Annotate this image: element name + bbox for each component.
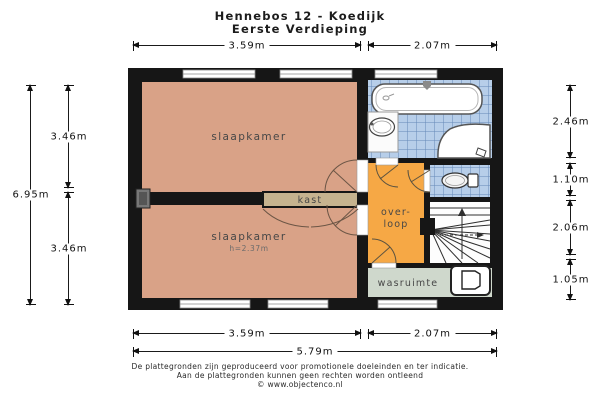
- dim-bottom-left: 3.59m: [133, 333, 361, 334]
- bathtub-icon: [372, 81, 482, 114]
- dim-left-lower-label: 3.46m: [46, 243, 91, 254]
- footer-line-1: De plattegronden zijn geproduceerd voor …: [0, 362, 600, 371]
- dim-right-4: 1.05m: [570, 259, 571, 300]
- footer-disclaimer: De plattegronden zijn geproduceerd voor …: [0, 362, 600, 389]
- footer-line-3: © www.objectenco.nl: [0, 380, 600, 389]
- dim-right-1-label: 2.46m: [548, 116, 593, 127]
- page-title: Hennebos 12 - Koedijk Eerste Verdieping: [0, 10, 600, 36]
- label-landing-2: loop: [383, 219, 408, 230]
- label-bedroom-bottom: slaapkamer: [211, 231, 286, 243]
- dim-left-lower: 3.46m: [68, 192, 69, 305]
- dim-top-left-label: 3.59m: [224, 41, 269, 52]
- dim-right-3-label: 2.06m: [548, 222, 593, 233]
- window-icon: [180, 300, 250, 308]
- dim-left-total: 6.95m: [30, 85, 31, 305]
- dim-top-right-label: 2.07m: [410, 41, 455, 52]
- dim-right-4-label: 1.05m: [548, 274, 593, 285]
- toilet-icon: [442, 173, 478, 188]
- dim-bottom-left-label: 3.59m: [224, 329, 269, 340]
- title-floor: Eerste Verdieping: [0, 23, 600, 36]
- dim-right-1: 2.46m: [570, 85, 571, 158]
- stair-newel-post: [420, 218, 435, 235]
- dim-left-total-label: 6.95m: [8, 190, 53, 201]
- label-bedroom-bottom-height: h=2.37m: [229, 244, 268, 253]
- washing-machine-icon: [451, 266, 490, 295]
- footer-line-2: Aan de plattegronden kunnen geen rechten…: [0, 371, 600, 380]
- dim-top-left: 3.59m: [133, 45, 361, 46]
- window-icon: [280, 70, 352, 78]
- dim-bottom-right: 2.07m: [368, 333, 497, 334]
- dim-top-right: 2.07m: [368, 45, 497, 46]
- window-icon: [375, 70, 437, 78]
- label-laundry: wasruimte: [378, 278, 439, 289]
- dim-right-2: 1.10m: [570, 163, 571, 196]
- dim-bottom-total: 5.79m: [133, 351, 497, 352]
- label-closet: kast: [298, 195, 323, 206]
- label-bedroom-top: slaapkamer: [211, 131, 286, 143]
- washbasin-icon: [368, 112, 398, 152]
- floorplan-page: Hennebos 12 - Koedijk Eerste Verdieping …: [0, 0, 600, 400]
- dim-left-upper: 3.46m: [68, 85, 69, 188]
- window-icon: [268, 300, 328, 308]
- window-icon: [183, 70, 255, 78]
- label-landing-1: over-: [381, 207, 411, 218]
- dim-bottom-right-label: 2.07m: [410, 329, 455, 340]
- dim-left-upper-label: 3.46m: [46, 131, 91, 142]
- dim-bottom-total-label: 5.79m: [292, 347, 337, 358]
- chimney-duct-icon: [136, 189, 150, 208]
- floorplan-drawing: slaapkamer slaapkamer h=2.37m kast over-…: [128, 68, 503, 310]
- dim-right-3: 2.06m: [570, 200, 571, 255]
- dim-right-2-label: 1.10m: [548, 174, 593, 185]
- window-icon: [378, 300, 437, 308]
